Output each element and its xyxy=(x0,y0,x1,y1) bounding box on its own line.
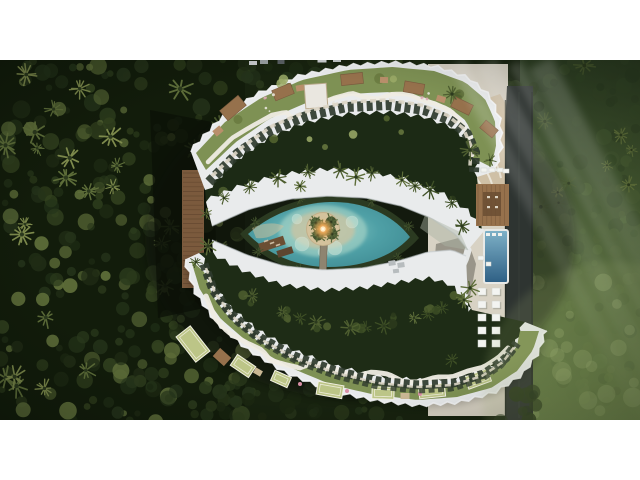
vignette xyxy=(0,60,640,420)
screenshot-root xyxy=(0,0,640,480)
letterbox-bottom xyxy=(0,420,640,480)
site-plan-render xyxy=(0,0,640,480)
photo-area xyxy=(0,53,640,480)
letterbox-top xyxy=(0,0,640,60)
